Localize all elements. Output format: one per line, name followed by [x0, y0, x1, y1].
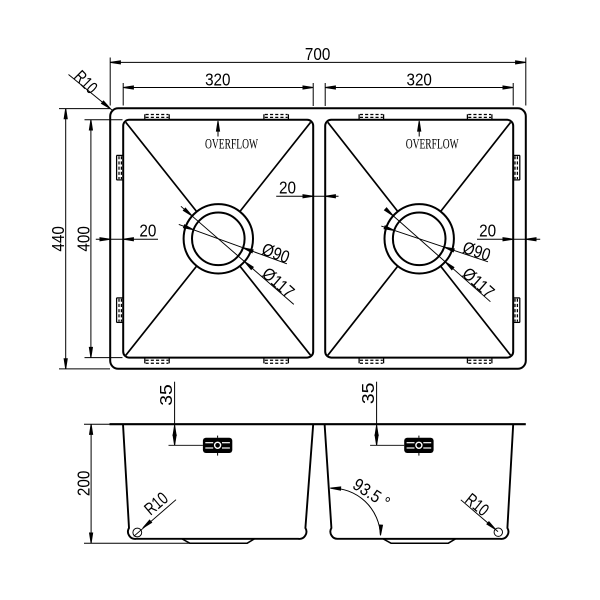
svg-text:400: 400	[73, 226, 93, 252]
svg-text:OVERFLOW: OVERFLOW	[205, 137, 259, 153]
svg-text:35: 35	[156, 384, 176, 406]
svg-text:20: 20	[479, 221, 496, 241]
svg-text:20: 20	[139, 221, 156, 241]
svg-text:OVERFLOW: OVERFLOW	[406, 137, 460, 153]
svg-text:700: 700	[305, 44, 331, 64]
svg-text:35: 35	[358, 383, 378, 405]
svg-text:20: 20	[279, 178, 296, 198]
svg-text:320: 320	[205, 69, 231, 89]
svg-text:200: 200	[73, 470, 93, 496]
svg-text:320: 320	[407, 69, 433, 89]
svg-text:440: 440	[48, 226, 68, 252]
